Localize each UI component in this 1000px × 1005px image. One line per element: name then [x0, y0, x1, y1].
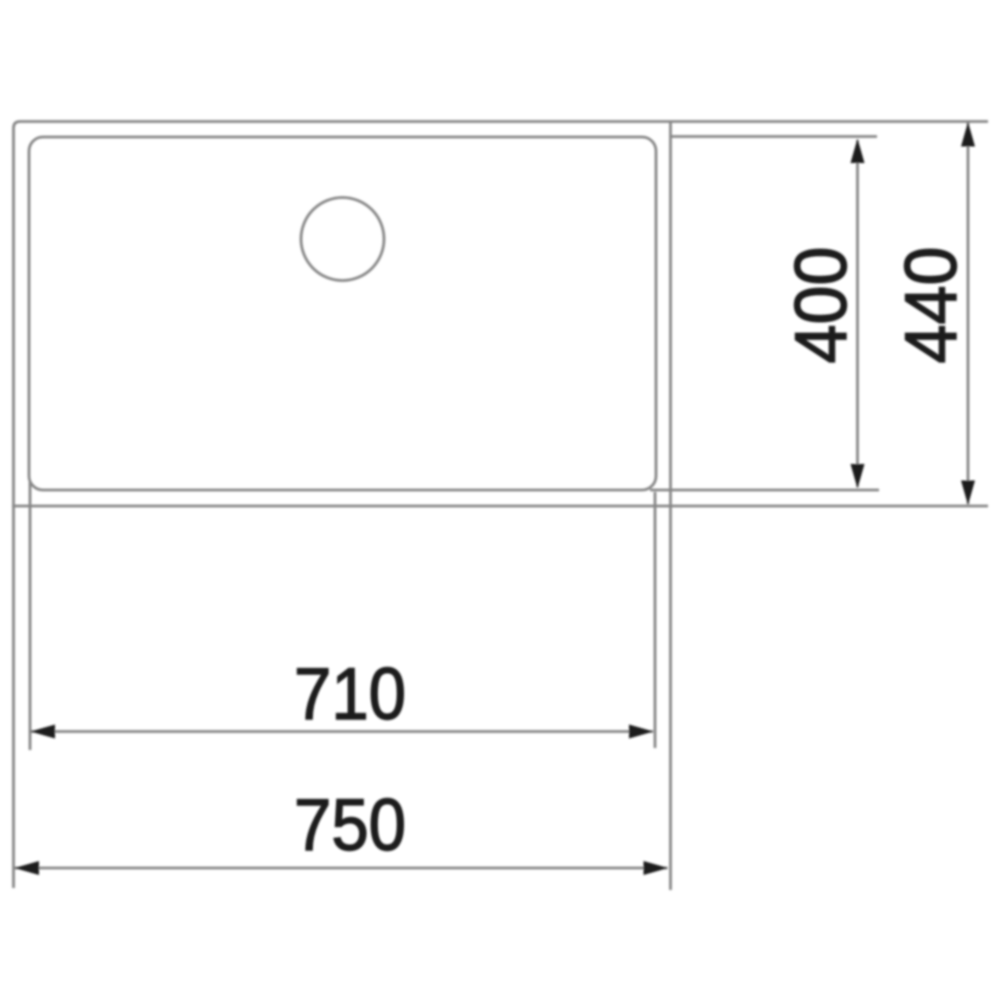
svg-text:710: 710 [294, 653, 406, 734]
svg-text:400: 400 [781, 247, 863, 364]
svg-text:440: 440 [891, 247, 973, 364]
svg-text:750: 750 [294, 784, 406, 865]
